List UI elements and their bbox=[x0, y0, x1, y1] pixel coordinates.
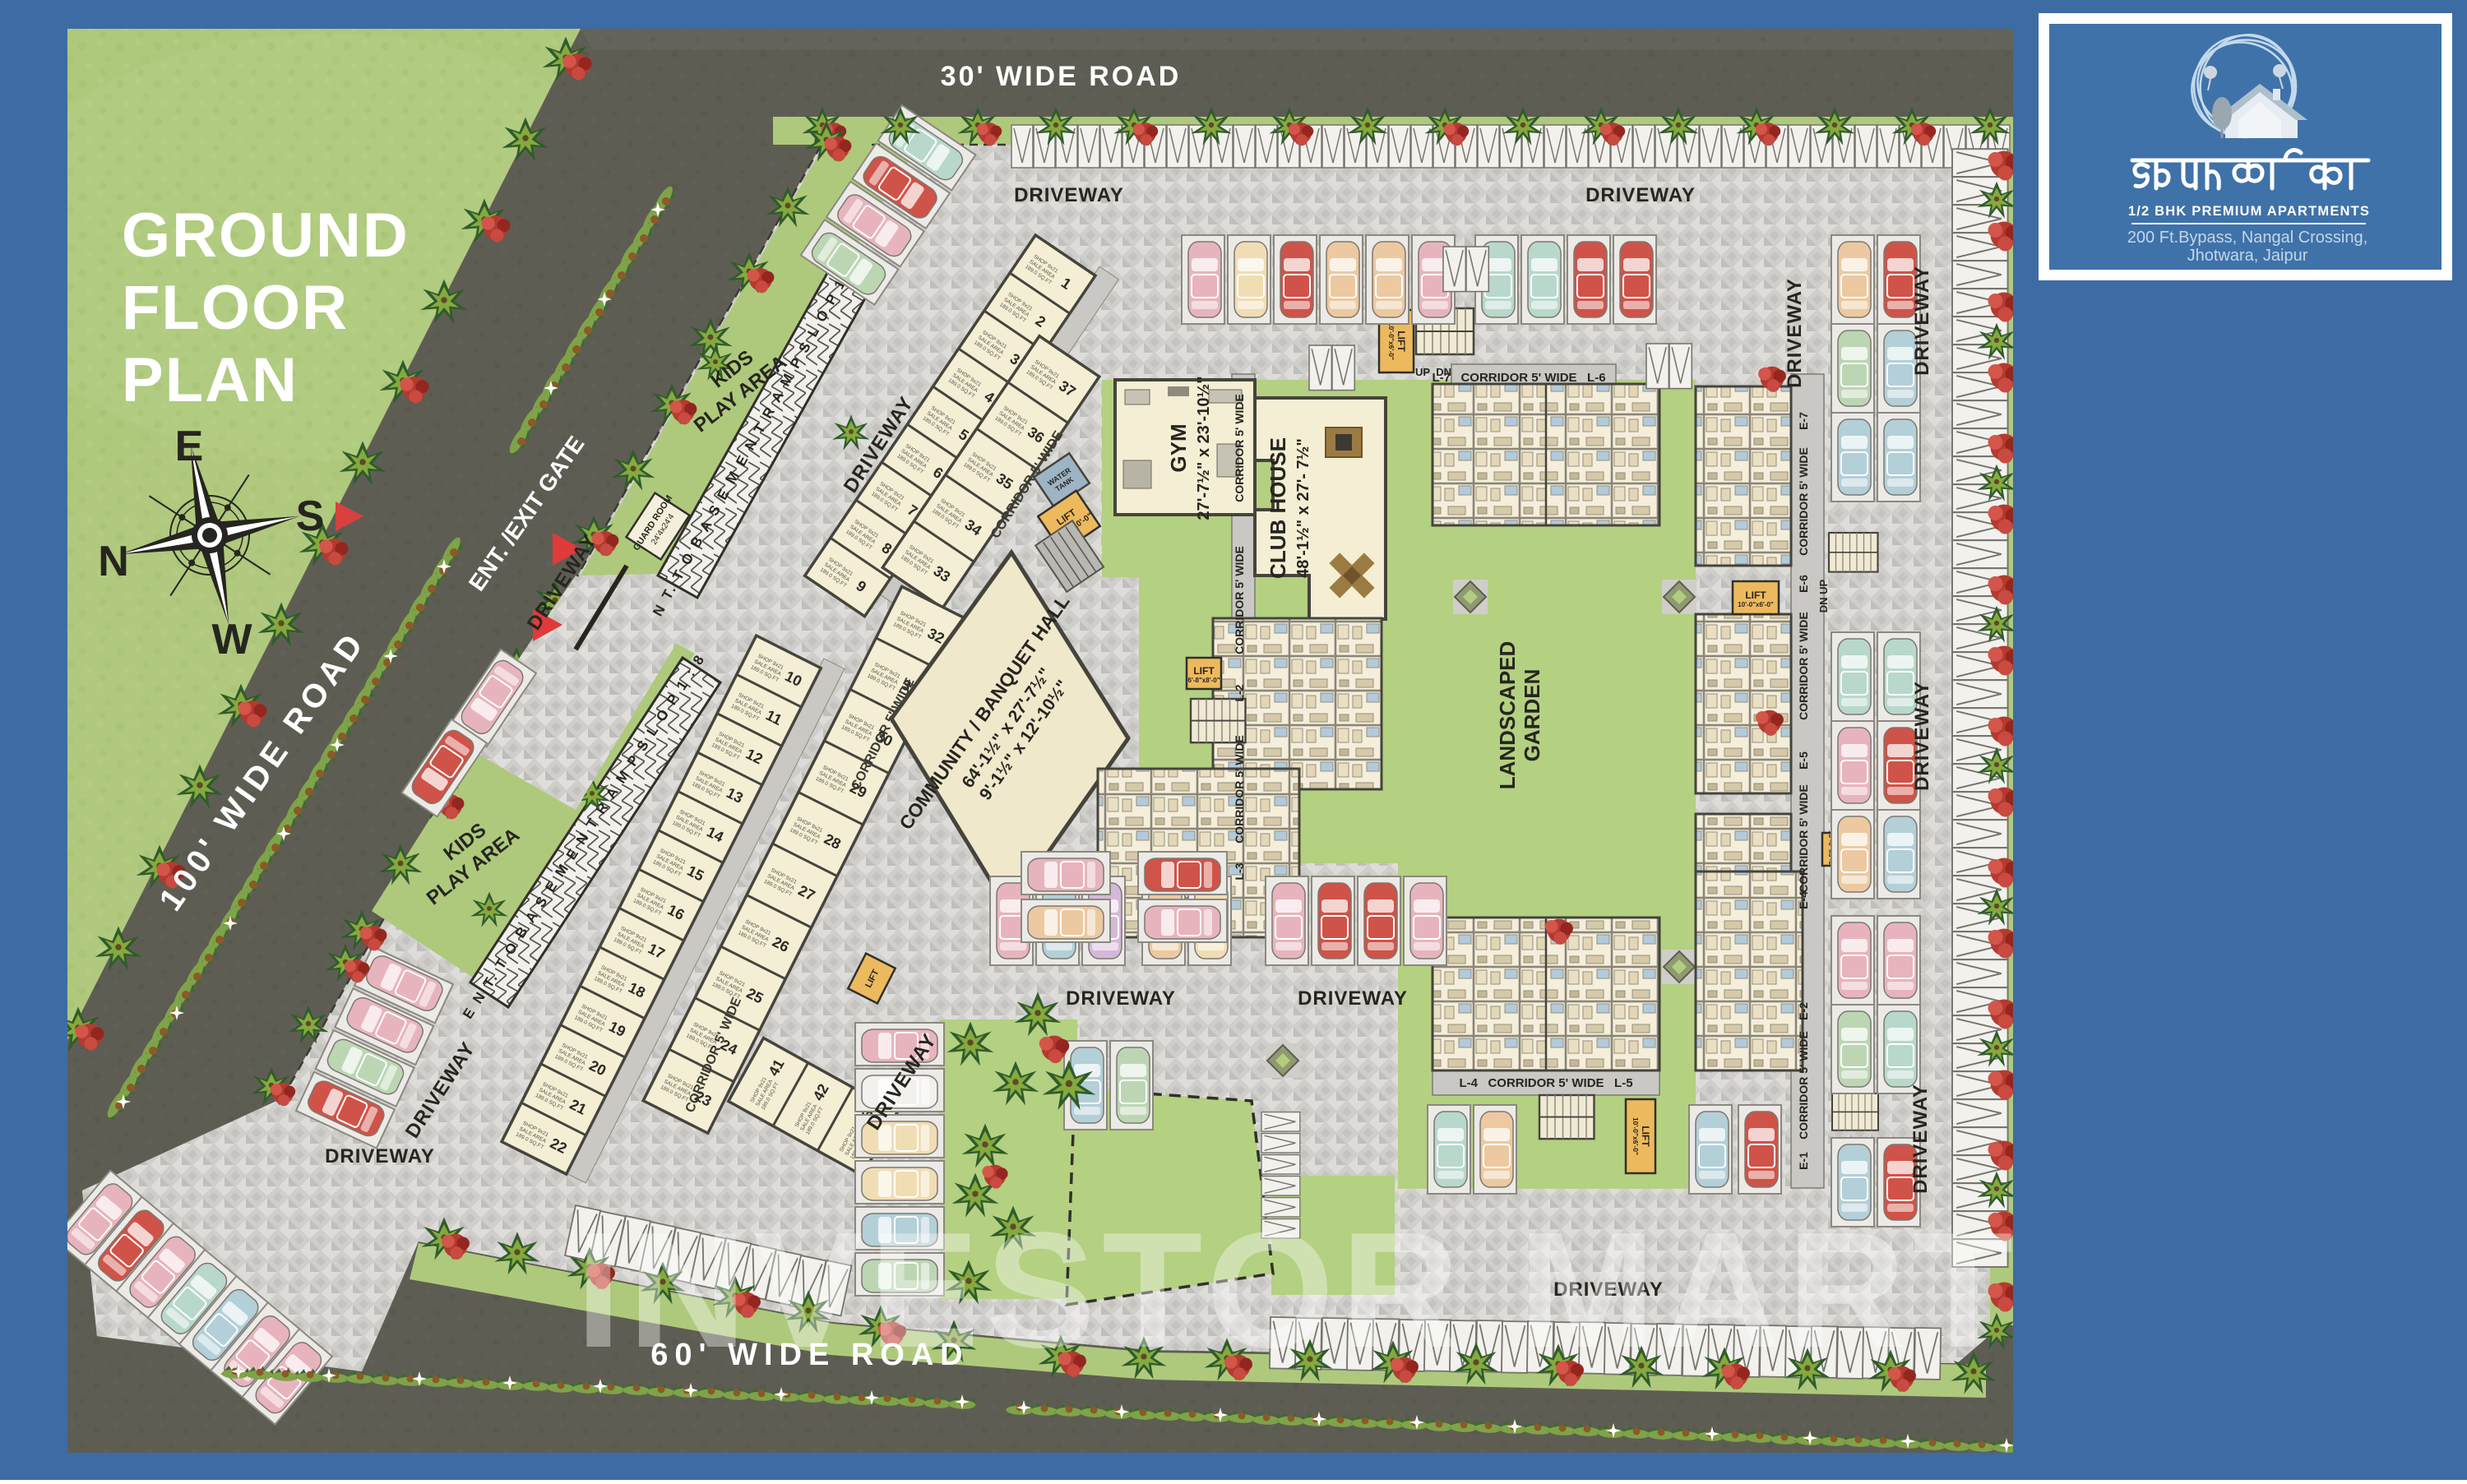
svg-text:DN UP: DN UP bbox=[1817, 579, 1830, 613]
svg-text:INVESTOR MART: INVESTOR MART bbox=[576, 1199, 2020, 1382]
svg-text:CORRIDOR 5' WIDE: CORRIDOR 5' WIDE bbox=[1233, 546, 1246, 654]
svg-text:6'-8"x8'-0": 6'-8"x8'-0" bbox=[1188, 677, 1220, 684]
svg-text:E-4: E-4 bbox=[1797, 891, 1810, 909]
svg-text:48'-1½" x 27'- 7½": 48'-1½" x 27'- 7½" bbox=[1294, 438, 1312, 578]
svg-text:GARDEN: GARDEN bbox=[1520, 669, 1544, 762]
svg-text:CORRIDOR 5' WIDE: CORRIDOR 5' WIDE bbox=[1797, 612, 1810, 720]
svg-text:LIFT: LIFT bbox=[1640, 1126, 1651, 1147]
svg-text:30' WIDE ROAD: 30' WIDE ROAD bbox=[941, 61, 1182, 92]
svg-text:UP DN: UP DN bbox=[1415, 366, 1451, 378]
svg-text:FLOOR: FLOOR bbox=[122, 273, 349, 343]
svg-text:CLUB HOUSE: CLUB HOUSE bbox=[1266, 437, 1290, 579]
svg-text:L-3: L-3 bbox=[1233, 862, 1246, 880]
svg-text:L-4 CORRIDOR 5' WIDE L-5: L-4 CORRIDOR 5' WIDE L-5 bbox=[1459, 1076, 1632, 1090]
svg-text:Jhotwara, Jaipur: Jhotwara, Jaipur bbox=[2187, 247, 2308, 265]
svg-text:27'-7½" x 23'-10½": 27'-7½" x 23'-10½" bbox=[1195, 376, 1213, 520]
svg-text:E-6: E-6 bbox=[1797, 575, 1810, 593]
svg-text:CORRIDOR 5' WIDE: CORRIDOR 5' WIDE bbox=[1797, 1031, 1810, 1140]
svg-text:LIFT: LIFT bbox=[1745, 589, 1766, 601]
svg-text:200 Ft.Bypass, Nangal Crossing: 200 Ft.Bypass, Nangal Crossing, bbox=[2127, 229, 2367, 247]
svg-text:E-2: E-2 bbox=[1797, 1002, 1810, 1020]
svg-text:LANDSCAPED: LANDSCAPED bbox=[1495, 641, 1520, 790]
svg-text:GROUND: GROUND bbox=[122, 201, 410, 270]
svg-text:DRIVEWAY: DRIVEWAY bbox=[1909, 1084, 1932, 1194]
svg-text:S: S bbox=[296, 492, 325, 540]
svg-text:DRIVEWAY: DRIVEWAY bbox=[1784, 278, 1806, 388]
svg-text:DRIVEWAY: DRIVEWAY bbox=[325, 1145, 435, 1167]
svg-text:CORRIDOR 5' WIDE: CORRIDOR 5' WIDE bbox=[1797, 784, 1810, 893]
svg-text:CORRIDOR 5' WIDE: CORRIDOR 5' WIDE bbox=[1233, 735, 1246, 844]
svg-text:DRIVEWAY: DRIVEWAY bbox=[1014, 184, 1124, 206]
svg-text:LIFT: LIFT bbox=[1395, 331, 1407, 352]
svg-text:DRIVEWAY: DRIVEWAY bbox=[1066, 987, 1176, 1010]
svg-text:10'-0"x6'-0": 10'-0"x6'-0" bbox=[1387, 322, 1395, 360]
svg-text:E-7: E-7 bbox=[1797, 412, 1810, 430]
svg-text:1/2 BHK PREMIUM APARTMENTS: 1/2 BHK PREMIUM APARTMENTS bbox=[2128, 204, 2370, 219]
svg-text:W: W bbox=[211, 616, 252, 663]
svg-text:DRIVEWAY: DRIVEWAY bbox=[1911, 681, 1933, 791]
svg-text:E-5: E-5 bbox=[1797, 751, 1810, 770]
svg-text:CORRIDOR 5' WIDE: CORRIDOR 5' WIDE bbox=[1233, 394, 1246, 502]
svg-text:10'-0"x6'-0": 10'-0"x6'-0" bbox=[1738, 601, 1774, 608]
svg-text:E-1: E-1 bbox=[1797, 1152, 1810, 1170]
svg-text:DRIVEWAY: DRIVEWAY bbox=[1911, 266, 1933, 376]
svg-text:10'-0"x6'-0": 10'-0"x6'-0" bbox=[1632, 1117, 1640, 1155]
svg-text:L-7 CORRIDOR 5' WIDE L-6: L-7 CORRIDOR 5' WIDE L-6 bbox=[1432, 371, 1605, 385]
svg-text:DRIVEWAY: DRIVEWAY bbox=[1585, 184, 1696, 206]
svg-text:N: N bbox=[98, 538, 129, 585]
svg-text:DRIVEWAY: DRIVEWAY bbox=[1298, 987, 1408, 1010]
svg-text:E: E bbox=[175, 423, 204, 470]
svg-text:GYM: GYM bbox=[1166, 423, 1191, 472]
svg-text:LIFT: LIFT bbox=[1193, 665, 1215, 677]
svg-text:CORRIDOR 5' WIDE: CORRIDOR 5' WIDE bbox=[1797, 447, 1810, 556]
svg-text:PLAN: PLAN bbox=[122, 345, 299, 415]
svg-text:L-2: L-2 bbox=[1233, 684, 1246, 701]
